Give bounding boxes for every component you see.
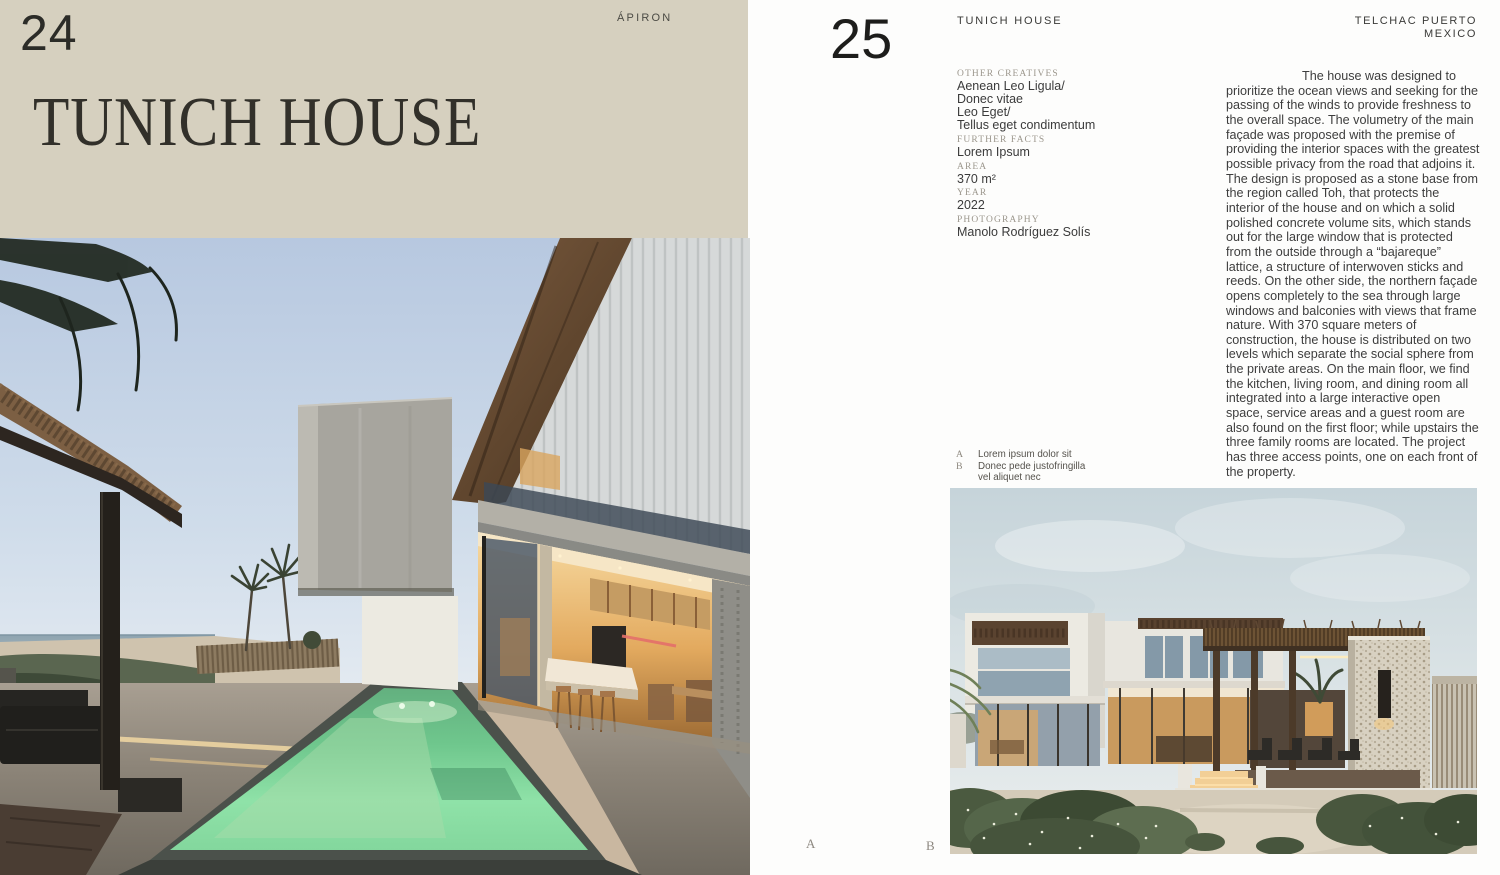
caption-list: A Lorem ipsum dolor sit B Donec pede jus…	[956, 449, 1116, 484]
book-spread: 24 ÁPIRON TUNICH HOUSE	[0, 0, 1500, 875]
credit-value: 2022	[957, 199, 1157, 212]
project-title: TUNICH HOUSE	[33, 88, 481, 158]
photo-mark-b: B	[926, 839, 935, 852]
credit-value: Aenean Leo Ligula/	[957, 80, 1157, 93]
right-photo-north-facade	[950, 488, 1477, 854]
caption-text-continued: vel aliquet nec	[978, 472, 1116, 484]
caption-row: A Lorem ipsum dolor sit	[956, 449, 1116, 461]
page-number-left: 24	[20, 8, 78, 58]
running-head-title: TUNICH HOUSE	[957, 15, 1062, 27]
credit-value: Lorem Ipsum	[957, 146, 1157, 159]
brand-name: ÁPIRON	[617, 12, 672, 24]
credit-value: Donec vitae	[957, 93, 1157, 106]
credit-label: AREA	[957, 162, 1157, 173]
caption-key: B	[956, 461, 978, 473]
location-line2: MEXICO	[1355, 28, 1477, 41]
credit-value: Tellus eget condimentum	[957, 119, 1157, 132]
caption-text: Donec pede justofringilla	[978, 461, 1085, 473]
credit-value: 370 m²	[957, 173, 1157, 186]
credit-value: Manolo Rodríguez Solís	[957, 226, 1157, 239]
photo-mark-a: A	[806, 837, 815, 850]
page-number-right: 25	[830, 11, 892, 67]
left-photo-pool-terrace	[0, 238, 750, 875]
credit-label: OTHER CREATIVES	[957, 69, 1157, 80]
credit-label: YEAR	[957, 188, 1157, 199]
caption-row: B Donec pede justofringilla	[956, 461, 1116, 473]
body-paragraph: The house was designed to prioritize the…	[1226, 69, 1480, 479]
caption-text: Lorem ipsum dolor sit	[978, 449, 1072, 461]
location-line1: TELCHAC PUERTO	[1355, 15, 1477, 28]
running-head-location: TELCHAC PUERTO MEXICO	[1355, 15, 1477, 41]
caption-key: A	[956, 449, 978, 461]
credits-block: OTHER CREATIVES Aenean Leo Ligula/ Donec…	[957, 66, 1157, 239]
